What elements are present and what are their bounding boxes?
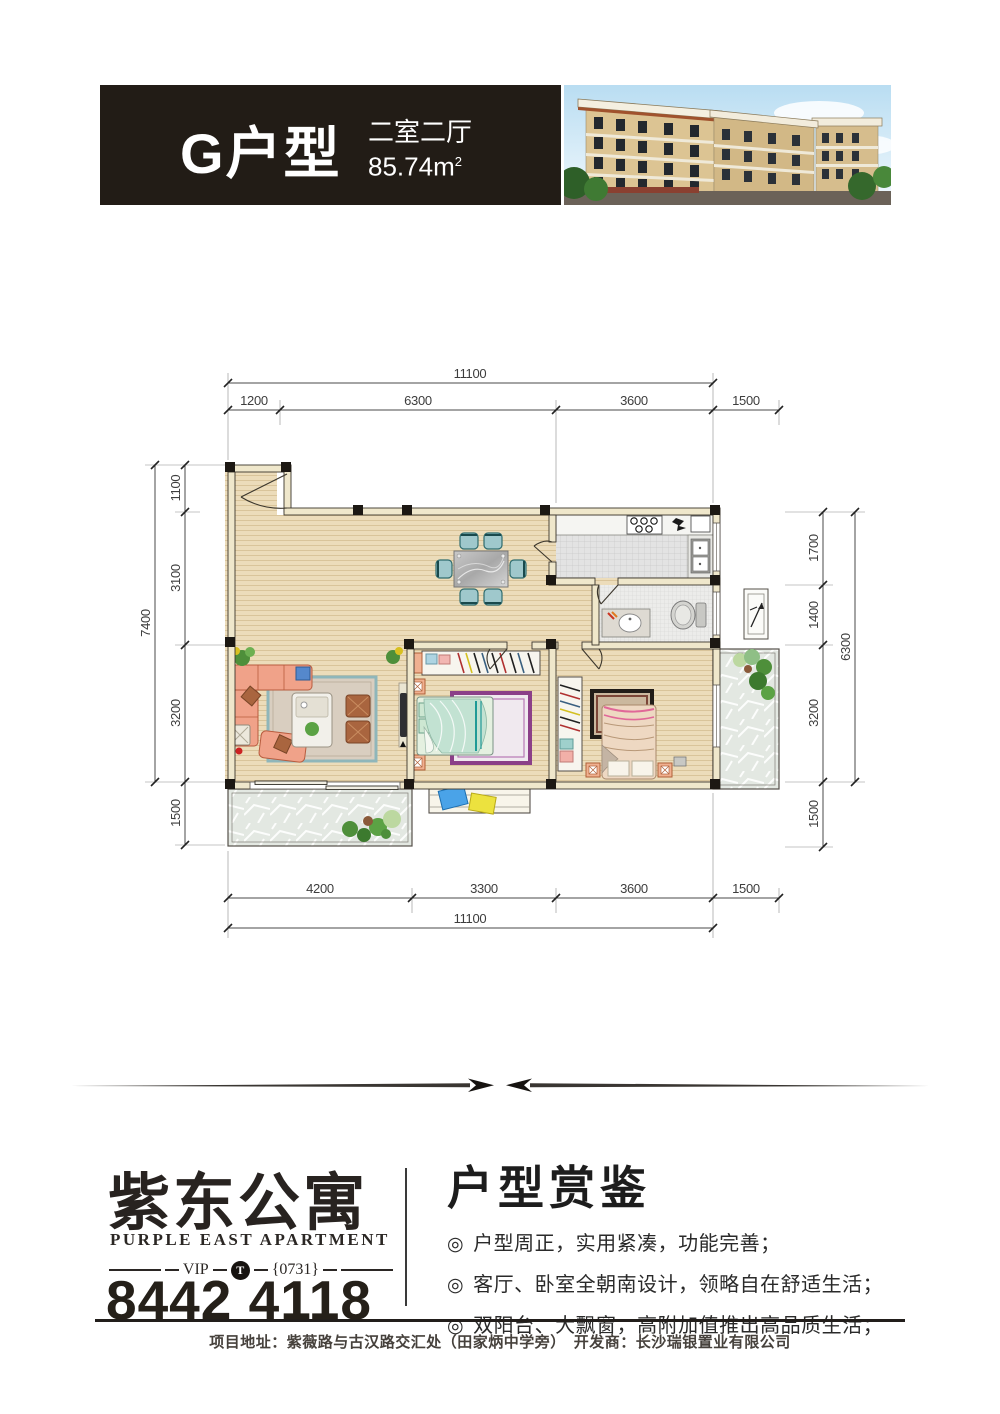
pillow xyxy=(632,761,653,776)
dim-top-2: 6300 xyxy=(404,393,432,408)
tv xyxy=(400,693,407,737)
blue-cushion xyxy=(296,667,310,680)
dining-chair xyxy=(460,533,478,549)
awning xyxy=(604,187,699,193)
dim-left-total: 7400 xyxy=(140,609,153,637)
dim-bottom-2: 3300 xyxy=(470,881,498,896)
dim-right-3: 3200 xyxy=(806,699,821,727)
red-lamp xyxy=(236,748,243,755)
brand-name-en: PURPLE EAST APARTMENT xyxy=(110,1230,390,1250)
footer-address: 项目地址：紫薇路与古汉路交汇处（田家炳中学旁） 开发商：长沙瑞银置业有限公司 xyxy=(0,1331,1000,1352)
table-plant xyxy=(305,722,319,736)
dim-left-2: 3100 xyxy=(168,564,183,592)
feature-item: ◎ 户型周正，实用紧凑，功能完善； xyxy=(447,1227,917,1256)
toilet xyxy=(671,601,706,629)
double-bed xyxy=(417,697,493,755)
vertical-divider xyxy=(405,1168,407,1306)
dim-top-4: 1500 xyxy=(732,393,760,408)
nightstand xyxy=(586,763,600,777)
dim-bottom-1: 4200 xyxy=(306,881,334,896)
coffee-table xyxy=(292,693,332,747)
dim-left-3: 3200 xyxy=(168,699,183,727)
right-balcony xyxy=(713,649,779,789)
features-title: 户型赏鉴 xyxy=(447,1152,651,1218)
dim-bottom-3: 3600 xyxy=(620,881,648,896)
dim-top-total: 11100 xyxy=(454,366,487,381)
divider-arrow-right xyxy=(506,1079,532,1093)
nightstand xyxy=(658,763,672,777)
dim-right-1: 1700 xyxy=(806,534,821,562)
left-balcony xyxy=(228,789,412,846)
footer-rule xyxy=(95,1319,905,1322)
ac-platform xyxy=(744,589,768,639)
building-photo xyxy=(564,85,891,205)
wardrobe xyxy=(558,677,582,771)
bay-window xyxy=(429,785,530,814)
unit-title: G户型 xyxy=(180,109,342,190)
wardrobe xyxy=(422,651,540,675)
bench xyxy=(674,757,686,766)
dining-chair xyxy=(436,560,452,578)
yellow-pillow xyxy=(469,793,497,814)
building-mid xyxy=(710,110,818,193)
dim-left-4: 1500 xyxy=(168,799,183,827)
dim-top-1: 1200 xyxy=(240,393,268,408)
pillow xyxy=(608,761,629,776)
dining-chair xyxy=(484,533,502,549)
ornament-divider xyxy=(70,1074,930,1098)
dim-bottom-4: 1500 xyxy=(732,881,760,896)
feature-item: ◎ 客厅、卧室全朝南设计，领略自在舒适生活； xyxy=(447,1268,917,1297)
dim-bottom-total: 11100 xyxy=(454,911,487,926)
single-bed xyxy=(602,705,656,779)
master-bedroom xyxy=(410,651,540,770)
bullet-icon: ◎ xyxy=(447,1233,464,1256)
unit-area: 85.74m2 xyxy=(368,147,472,182)
sliding-door xyxy=(250,781,400,790)
phone-number: 8442 4118 xyxy=(106,1268,372,1332)
wash-basin xyxy=(619,614,641,632)
dim-right-4: 1500 xyxy=(806,800,821,828)
dim-right-2: 1400 xyxy=(806,601,821,629)
dining-chair xyxy=(460,589,478,605)
header-banner: G户型 二室二厅 85.74m2 xyxy=(100,85,561,205)
floor-plan: 11100 1200 6300 3600 1500 4200 3300 3600… xyxy=(140,355,920,970)
divider-arrow-left xyxy=(468,1079,494,1093)
dim-top-3: 3600 xyxy=(620,393,648,408)
bullet-icon: ◎ xyxy=(447,1274,464,1297)
unit-subtitle: 二室二厅 85.74m2 xyxy=(368,117,472,182)
feature-text: 户型周正，实用紧凑，功能完善； xyxy=(473,1227,781,1256)
feature-text: 客厅、卧室全朝南设计，领略自在舒适生活； xyxy=(473,1268,883,1297)
dim-right-total: 6300 xyxy=(838,633,853,661)
stove xyxy=(627,516,662,534)
dining-chair xyxy=(484,589,502,605)
fridge xyxy=(691,516,710,532)
unit-type: 二室二厅 xyxy=(368,117,472,147)
brand-name-cn: 紫东公寓 xyxy=(108,1152,368,1242)
dim-left-1: 1100 xyxy=(168,475,183,502)
ground xyxy=(564,191,891,205)
dining-chair xyxy=(510,560,526,578)
